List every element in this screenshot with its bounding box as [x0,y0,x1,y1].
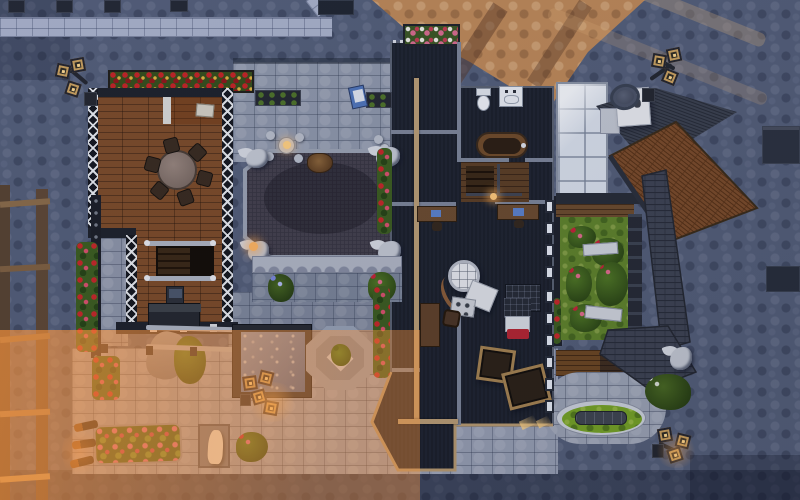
stairwell[interactable] [461,162,529,202]
cafe-chair[interactable] [266,131,275,140]
bed-blanket [507,329,529,339]
study-desk[interactable] [497,204,539,220]
rose-trellis[interactable] [76,242,98,352]
overhead-build-scene [0,0,800,500]
tv-sideboard[interactable] [148,303,200,327]
railing-newel [144,240,150,246]
writing-desk[interactable] [420,303,440,347]
window[interactable] [545,200,554,213]
sideboard-top [149,304,201,312]
gargoyle-statue[interactable] [242,146,270,170]
fountain-plant[interactable] [331,344,351,366]
triple-lantern-lamp[interactable] [640,44,696,108]
cafe-table[interactable] [278,137,295,154]
stone-trough[interactable] [575,411,627,425]
window-planter[interactable] [255,90,301,106]
stair-treads [466,166,494,196]
blue-book [431,210,441,217]
study-desk[interactable] [417,206,457,222]
ridge-beam [414,78,419,423]
flower-bed[interactable] [93,422,182,465]
stair-railing [146,276,216,281]
armchair[interactable] [442,309,462,329]
window[interactable] [545,400,554,413]
wall-block [762,126,800,164]
cafe-chair[interactable] [374,135,383,144]
railing-newel [210,240,216,246]
lantern [666,47,683,64]
gargoyle-body [246,149,268,168]
triple-lantern-lamp[interactable] [54,56,110,120]
statue-niche [198,424,230,468]
east-wall-timbered [222,88,233,322]
lantern [666,446,684,464]
lantern [55,63,72,80]
lantern [258,370,275,387]
stair-railing [497,164,500,196]
white-flower-bush[interactable] [645,374,691,410]
window-planter[interactable] [366,92,392,108]
blue-laptop [513,208,524,216]
staircase[interactable] [156,246,214,280]
interior-wall [525,158,553,162]
lantern [651,53,667,69]
tub-faucet [521,143,526,148]
toilet-bowl [477,95,490,111]
parapet-flower-box[interactable] [403,24,460,46]
wall-block [766,266,800,292]
window[interactable] [545,222,554,235]
basin [504,95,519,104]
faucet [513,90,516,93]
faucet [505,90,508,93]
sink-vanity[interactable] [499,86,523,107]
screen [169,289,182,298]
west-wall-lower [126,235,137,327]
north-wall [94,88,233,97]
climbing-roses[interactable] [92,356,120,400]
stair-treads [158,248,190,278]
triple-lantern-lamp[interactable] [652,424,702,470]
pergola-post [146,346,153,355]
gargoyle-body [670,347,692,370]
oval-pond[interactable] [556,400,646,436]
scalloped-balcony [252,256,402,273]
lamp-post [84,92,97,106]
cafe-chair[interactable] [294,154,303,163]
toilet[interactable] [476,88,491,112]
window[interactable] [545,356,554,369]
rose-trellis[interactable] [377,148,392,234]
ridge-beam-cross [398,419,458,424]
window[interactable] [545,244,554,257]
roof-crest[interactable] [307,153,333,173]
window[interactable] [545,266,554,279]
interior-wall [457,42,461,162]
lantern [70,57,86,73]
lantern [657,427,673,443]
pergola-post [190,347,197,356]
stair-railing [146,241,216,246]
easel-canvas [353,89,365,103]
rose-trellis[interactable] [373,286,390,378]
tub-interior [483,138,521,154]
ivy-bush[interactable] [174,336,206,384]
desk-stool[interactable] [432,222,442,231]
window[interactable] [545,334,554,347]
lantern [242,375,258,391]
railing-newel [144,275,150,281]
railing-newel [210,275,216,281]
pergola-post [101,344,108,353]
lamp-post [240,394,251,406]
interior-wall [391,130,459,134]
lantern [64,80,82,98]
cafe-chair[interactable] [295,133,304,142]
desk-stool[interactable] [514,220,524,228]
wooden-bathtub[interactable] [476,132,528,158]
garden-statue[interactable] [207,430,224,465]
roof-gargoyle[interactable] [666,344,694,372]
bed-headboard [504,298,531,318]
stair-railing [466,193,522,196]
planter-blue-flowers[interactable] [268,274,294,302]
window[interactable] [545,312,554,325]
lamp-post [642,88,655,102]
side-room-table[interactable] [195,103,214,118]
lantern-cluster[interactable] [240,368,286,418]
lamp-post [652,444,664,458]
window[interactable] [545,290,554,303]
single-bed[interactable] [504,298,531,340]
window[interactable] [545,378,554,391]
lantern [263,400,279,416]
side-room-wall [163,97,171,124]
